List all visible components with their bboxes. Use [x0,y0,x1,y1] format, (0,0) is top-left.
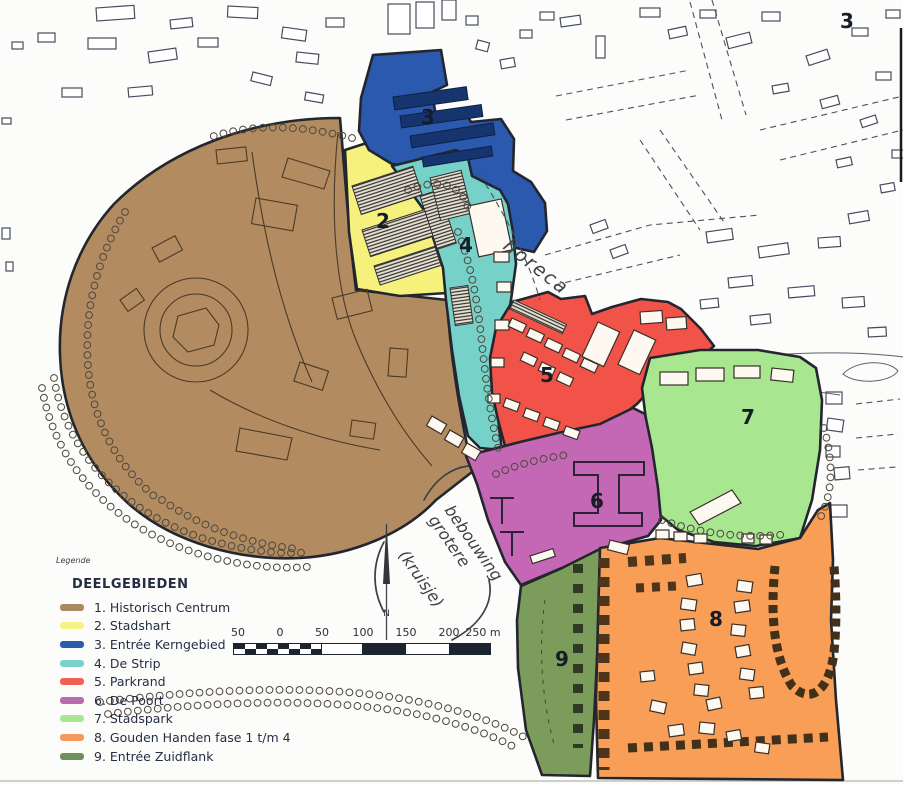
tree-icon [93,490,100,497]
tree-icon [57,441,64,448]
tree-icon [433,715,440,722]
tree-icon [366,691,373,698]
legend-swatch [60,734,84,741]
tree-icon [46,414,53,421]
tree-icon [74,440,81,447]
tree-icon [445,705,452,712]
legend: Legende DEELGEBIEDEN 1. Historisch Centr… [52,556,322,765]
tree-icon [65,422,72,429]
zone-number-9: 9 [555,647,569,671]
tree-icon [100,497,107,504]
legend-item: 9. Entrée Zuidflank [60,747,322,766]
tree-icon [464,710,471,717]
tree-icon [167,540,174,547]
tree-icon [354,703,361,710]
tree-icon [176,544,183,551]
legend-swatch [60,604,84,611]
tree-icon [73,467,80,474]
legend-swatch [60,753,84,760]
tree-icon [483,717,490,724]
zone-number-8: 8 [709,607,723,631]
legend-swatch [60,641,84,648]
tree-icon [69,431,76,438]
legend-item: 7. Stadspark [60,710,322,729]
scale-label: 250 m [465,626,500,639]
tree-icon [326,688,333,695]
tree-icon [149,531,156,538]
scale-bar-checker [234,644,321,654]
tree-icon [131,521,138,528]
annotation-paren-left [375,542,384,612]
legend-item-label: 3. Entrée Kerngebied [94,637,226,652]
legend-item-label: 9. Entrée Zuidflank [94,749,213,764]
tree-icon [107,503,114,510]
tree-icon [324,700,331,707]
tree-icon [51,375,58,382]
legend-item: 8. Gouden Handen fase 1 t/m 4 [60,728,322,747]
corner-label-3: 3 [840,9,854,33]
tree-icon [519,733,526,740]
zone-number-4: 4 [459,233,473,257]
legend-item-label: 5. Parkrand [94,674,166,689]
tree-icon [53,432,60,439]
tree-icon [185,547,192,554]
tree-icon [61,413,68,420]
legend-item-label: 4. De Strip [94,656,161,671]
scale-label: 200 [439,626,460,639]
tree-icon [123,515,130,522]
tree-icon [374,705,381,712]
tree-icon [346,689,353,696]
tree-icon [39,385,46,392]
scale-segment [449,644,490,654]
legend-swatch [60,622,84,629]
tree-icon [471,727,478,734]
scale-label: 0 [277,626,284,639]
tree-icon [356,690,363,697]
tree-icon [824,494,831,501]
tree-icon [490,734,497,741]
scale-label: 50 [315,626,329,639]
tree-icon [79,475,86,482]
tree-icon [364,704,371,711]
tree-icon [58,404,65,411]
tree-icon [49,423,56,430]
legend-item: 6. De Poort [60,691,322,710]
tree-icon [826,484,833,491]
scale-bar: 50 0 50 100 150 200 250 m [233,626,491,658]
tree-icon [510,728,517,735]
tree-icon [823,434,830,441]
legend-item-label: 1. Historisch Centrum [94,600,230,615]
tree-icon [349,135,356,142]
tree-icon [43,404,50,411]
zone-number-3: 3 [421,105,435,129]
tree-icon [454,708,461,715]
tree-icon [386,693,393,700]
legend-item: 1. Historisch Centrum [60,598,322,617]
tree-icon [140,526,147,533]
scale-bar-graphic [233,643,491,655]
zone-number-7: 7 [741,405,755,429]
tree-icon [68,459,75,466]
tree-icon [52,384,59,391]
legend-swatch [60,715,84,722]
tree-icon [41,394,48,401]
scale-label: 100 [353,626,374,639]
tree-icon [376,692,383,699]
tree-icon [210,133,217,140]
tree-icon [334,701,341,708]
north-arrow: N [383,522,390,640]
annotation-kruisje: (kruisje) [395,546,448,611]
tree-icon [396,695,403,702]
tree-icon [394,707,401,714]
legend-swatch [60,678,84,685]
tree-icon [501,724,508,731]
legend-swatch [60,660,84,667]
tree-icon [406,696,413,703]
tree-icon [473,714,480,721]
zone-number-6: 6 [590,489,604,513]
legend-item-label: 6. De Poort [94,693,164,708]
legend-item: 5. Parkrand [60,672,322,691]
zone-number-5: 5 [540,363,554,387]
tree-icon [462,723,469,730]
tree-icon [404,709,411,716]
tree-icon [86,482,93,489]
tree-icon [55,394,62,401]
tree-icon [425,700,432,707]
scale-segment [362,644,405,654]
tree-icon [415,698,422,705]
tree-icon [443,718,450,725]
planning-map-page: 2 3 4 5 6 7 8 9 3 horeca grotere bebouwi… [0,0,903,785]
tree-icon [158,536,165,543]
legend-item-label: 8. Gouden Handen fase 1 t/m 4 [94,730,291,745]
tree-icon [827,464,834,471]
scale-label: 50 [231,626,245,639]
legend-swatch [60,697,84,704]
tree-icon [508,742,515,749]
tree-icon [413,711,420,718]
tree-icon [452,720,459,727]
tree-icon [435,703,442,710]
scale-label: 150 [396,626,417,639]
tree-icon [336,688,343,695]
tree-icon [827,474,834,481]
legend-caption: Legende [56,556,322,565]
scale-segment [321,644,362,654]
scale-segment [405,644,448,654]
legend-item-label: 2. Stadshart [94,618,170,633]
tree-icon [344,702,351,709]
tree-icon [481,730,488,737]
tree-icon [499,738,506,745]
north-arrow-label: N [383,609,390,619]
tree-icon [115,510,122,517]
zone-number-2: 2 [376,209,390,233]
tree-icon [492,720,499,727]
tree-icon [384,706,391,713]
tree-icon [423,713,430,720]
legend-title: DEELGEBIEDEN [72,577,322,592]
legend-item-label: 7. Stadspark [94,711,173,726]
tree-icon [62,450,69,457]
